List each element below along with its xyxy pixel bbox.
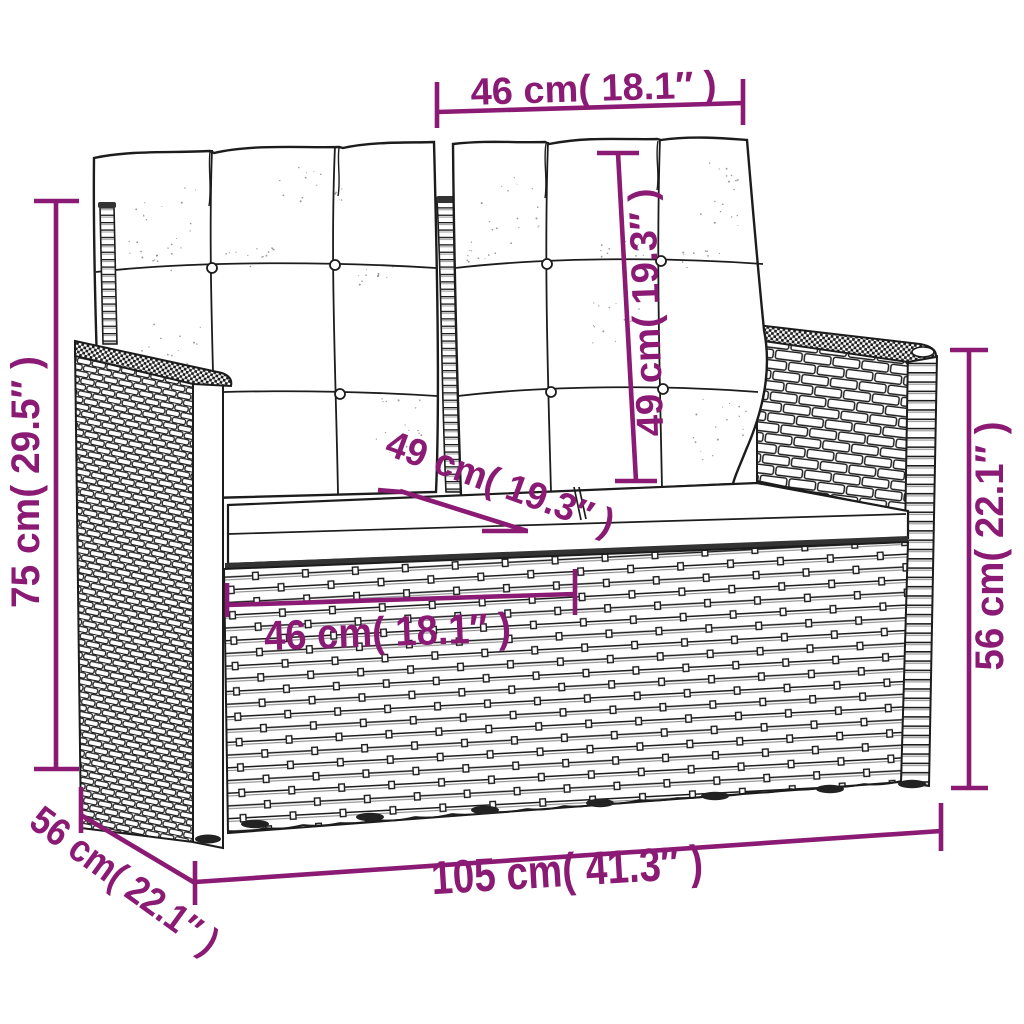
svg-text:75 cm( 29.5″ ): 75 cm( 29.5″ ) <box>4 356 48 608</box>
svg-text:46 cm( 18.1″ ): 46 cm( 18.1″ ) <box>263 604 511 660</box>
svg-text:56 cm( 22.1″ ): 56 cm( 22.1″ ) <box>968 422 1012 671</box>
svg-text:49 cm( 19.3″ ): 49 cm( 19.3″ ) <box>622 188 673 437</box>
svg-text:46 cm( 18.1″ ): 46 cm( 18.1″ ) <box>470 64 717 114</box>
